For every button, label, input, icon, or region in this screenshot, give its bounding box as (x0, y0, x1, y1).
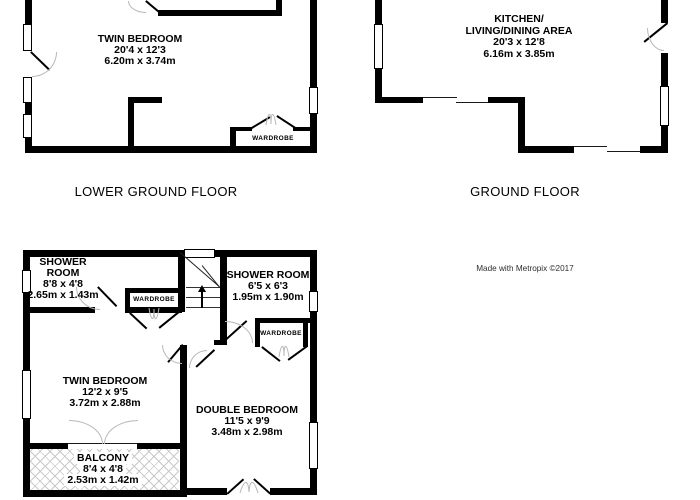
door-arc (189, 350, 207, 368)
window (22, 370, 31, 419)
floor-label-ground: GROUND FLOOR (425, 184, 625, 199)
room-dimensions-metric: 1.95m x 1.90m (208, 292, 328, 303)
stair-step-line (186, 307, 220, 308)
room-dimensions-metric: 3.48m x 2.98m (187, 427, 307, 438)
wall (518, 97, 525, 153)
room-dimensions-metric: 3.72m x 2.88m (45, 398, 165, 409)
window (309, 87, 318, 114)
wall (180, 345, 187, 497)
credit-text: Made with Metropix ©2017 (425, 264, 625, 273)
stairs-up-arrow-icon (198, 285, 206, 292)
wall (375, 97, 423, 103)
door-opening (25, 51, 32, 77)
bifold-door-icon (147, 306, 161, 324)
room-dimensions-metric: 6.20m x 3.74m (80, 56, 200, 67)
room-label-shower-right: SHOWER ROOM 6'5 x 6'3 1.95m x 1.90m (208, 270, 328, 303)
room-dimensions-metric: 6.16m x 3.85m (429, 49, 609, 61)
window (374, 24, 383, 69)
opening-line (574, 146, 607, 147)
wall (128, 97, 134, 153)
room-label-double-bedroom: DOUBLE BEDROOM 11'5 x 9'9 3.48m x 2.98m (187, 405, 307, 438)
window (184, 249, 215, 258)
stairs-up-arrow-icon (201, 291, 203, 308)
room-label-kitchen: KITCHEN/ LIVING/DINING AREA 20'3 x 12'8 … (429, 14, 609, 60)
wardrobe-label: WARDROBE (127, 296, 181, 303)
room-label-twin-bedroom: TWIN BEDROOM 12'2 x 9'5 3.72m x 2.88m (45, 376, 165, 409)
wall (23, 490, 185, 497)
window (23, 114, 32, 138)
wall (518, 146, 574, 153)
wall (180, 488, 227, 495)
floorplan-page: TWIN BEDROOM 20'4 x 12'3 6.20m x 3.74m W… (0, 0, 700, 500)
room-label-twin-bedroom-lg: TWIN BEDROOM 20'4 x 12'3 6.20m x 3.74m (80, 34, 200, 67)
window (309, 422, 318, 469)
wall (25, 146, 317, 153)
door-arc (104, 420, 138, 444)
bifold-door-leaf (159, 311, 179, 328)
wall (128, 97, 162, 103)
wall (125, 288, 182, 293)
room-label-shower-left: SHOWER ROOM 8'8 x 4'8 2.65m x 1.43m (3, 257, 123, 301)
wall (158, 10, 282, 16)
opening-line (607, 151, 640, 152)
door-arc (69, 420, 103, 444)
wall (23, 307, 95, 313)
door-arc (32, 52, 57, 77)
door-arc (128, 1, 146, 13)
opening-line (423, 97, 457, 98)
window (23, 77, 32, 103)
bifold-door-icon (277, 340, 291, 358)
room-dimensions-metric: 2.53m x 1.42m (43, 475, 163, 486)
door-arc (225, 321, 253, 343)
opening-line (456, 102, 490, 103)
bifold-door-leaf (129, 312, 147, 329)
door-leaf (146, 0, 161, 13)
floor-label-lower-ground: LOWER GROUND FLOOR (56, 184, 256, 199)
room-dimensions-imperial: 20'3 x 12'8 (429, 37, 609, 49)
wardrobe-label: WARDROBE (233, 135, 313, 142)
room-label-balcony: BALCONY 8'4 x 4'8 2.53m x 1.42m (43, 453, 163, 486)
wardrobe-label: WARDROBE (254, 330, 308, 337)
wall (276, 0, 282, 12)
window (23, 24, 32, 51)
bifold-door-leaf (277, 115, 296, 128)
door-arc (162, 345, 182, 364)
double-door-icon (238, 476, 260, 494)
window (660, 86, 669, 126)
bifold-door-icon (264, 108, 278, 126)
room-name: KITCHEN/ (429, 14, 609, 26)
room-dimensions-metric: 2.65m x 1.43m (3, 290, 123, 301)
door-arc (647, 28, 664, 51)
wall (293, 127, 312, 131)
wall (270, 488, 317, 495)
